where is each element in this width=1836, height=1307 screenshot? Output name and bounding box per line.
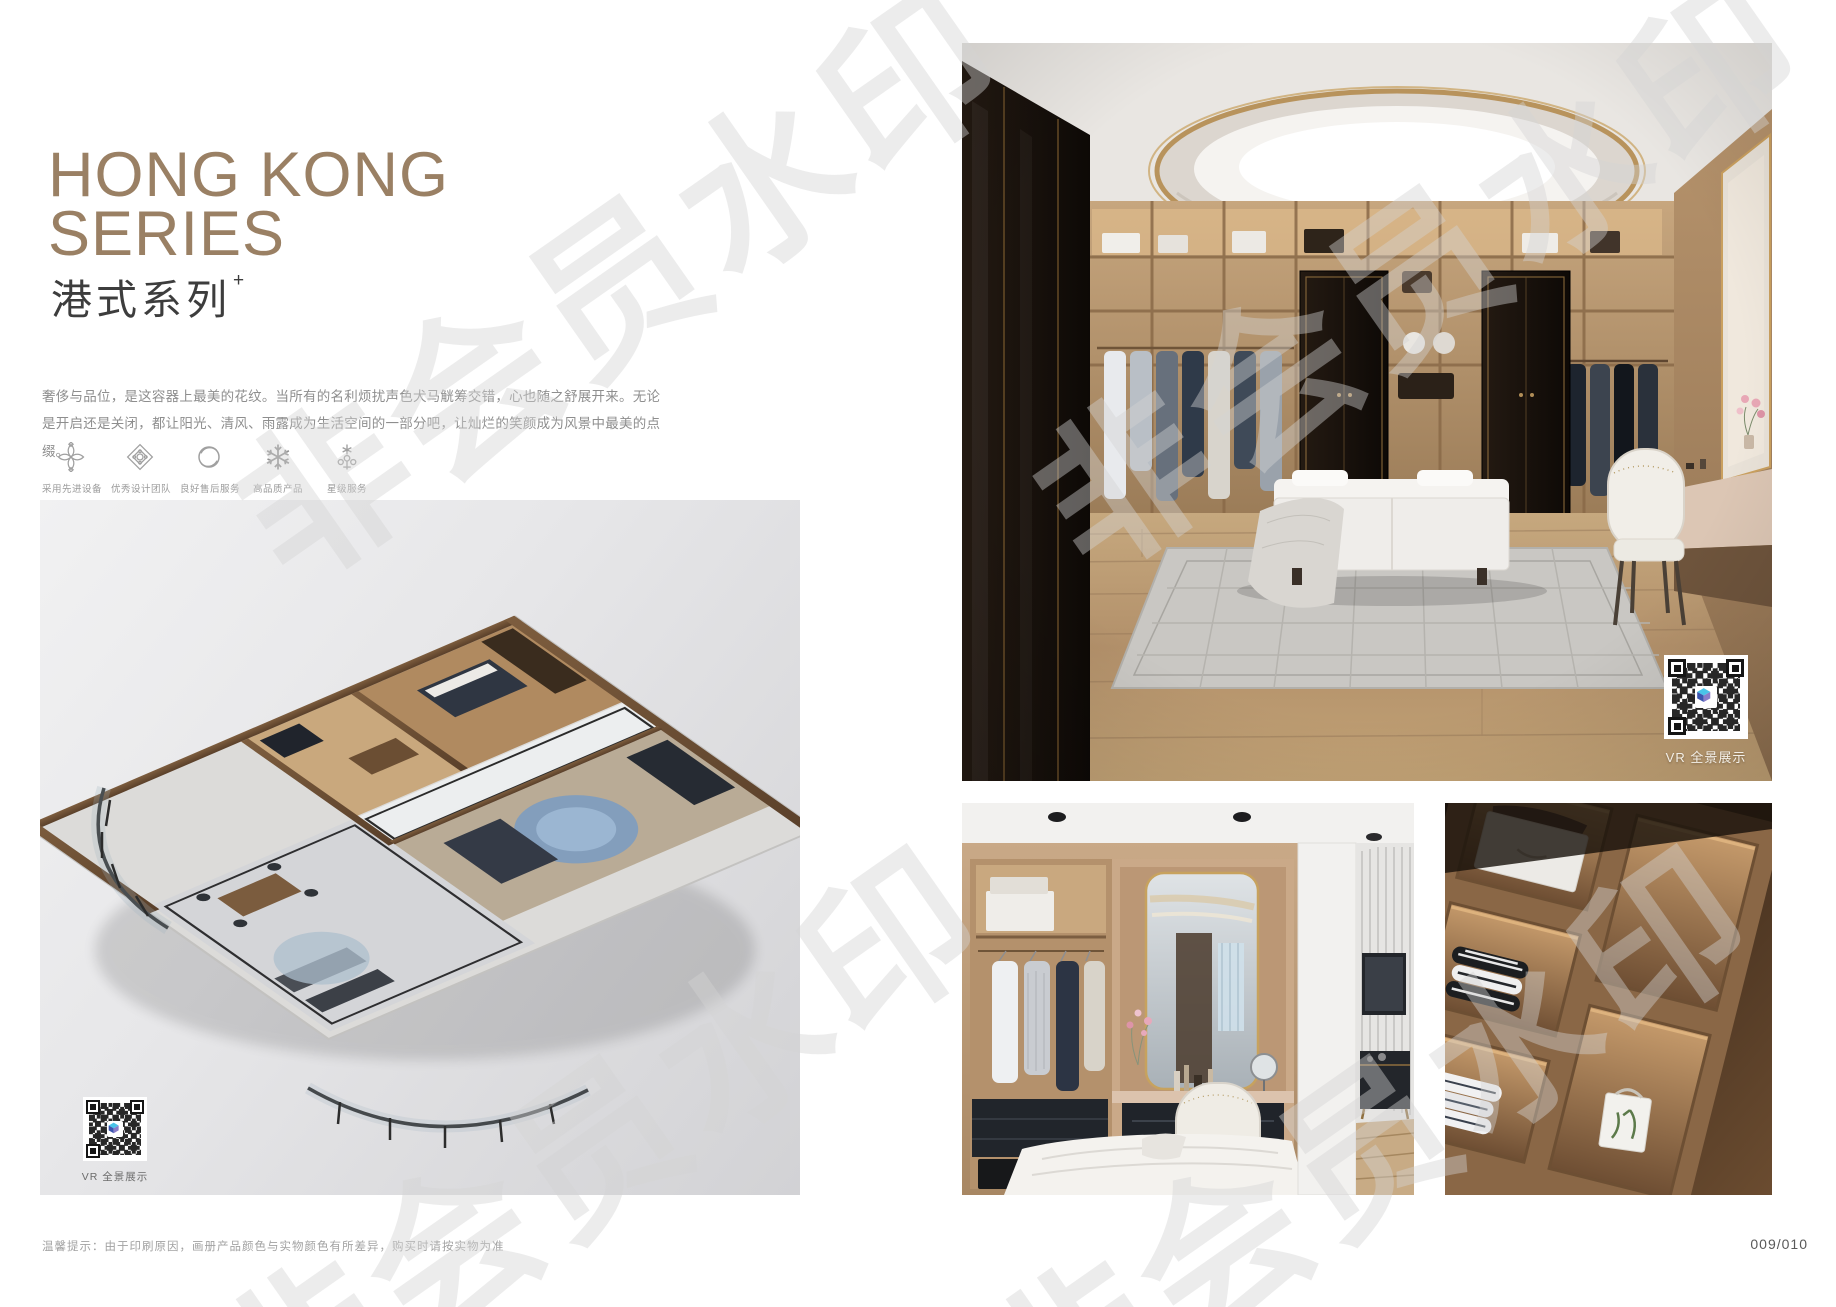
qr-cube-logo: [107, 1121, 124, 1138]
shelf-closeup-photo: [1445, 803, 1772, 1195]
white-column: [1298, 843, 1356, 1195]
qr-finder: [1668, 659, 1686, 677]
catalog-page: 非会员水印 非会员水印 非会员水印 非会员水印 HONG KONG SERIES…: [0, 0, 1836, 1307]
table-mirror: [1251, 1054, 1277, 1080]
qr-finder: [86, 1100, 99, 1113]
snowflake-icon: [263, 442, 293, 472]
feature-design-team: 优秀设计团队: [111, 442, 169, 495]
feature-label: 高品质产品: [249, 481, 307, 495]
qr-finder: [86, 1144, 99, 1157]
vr-panorama-label: VR 全景展示: [1634, 747, 1772, 766]
feature-advanced-equipment: 采用先进设备: [42, 442, 100, 495]
dressing-area-render: [962, 803, 1414, 1195]
series-title-cn: 港式系列+: [51, 266, 248, 326]
feature-list: 采用先进设备 优秀设计团队 良好售后服务: [42, 442, 376, 495]
vr-panorama-label: VR 全景展示: [58, 1169, 172, 1184]
adjacent-room-view: [1356, 843, 1414, 1195]
feature-label: 优秀设计团队: [111, 481, 169, 495]
shelf-closeup-render: [1445, 803, 1772, 1195]
qr-finder: [1668, 717, 1686, 735]
series-title-en: HONG KONG SERIES: [48, 146, 449, 264]
qr-cube-logo: [1695, 686, 1717, 708]
page-number: 009/010: [1750, 1236, 1808, 1252]
walk-in-closet-photo: VR 全景展示: [962, 43, 1772, 781]
qr-finder: [130, 1100, 143, 1113]
series-title-sup: +: [233, 270, 248, 291]
vignette: [962, 43, 1772, 781]
walk-in-closet-render: [962, 43, 1772, 781]
isometric-floorplan-render: [40, 500, 800, 1195]
feature-label: 星级服务: [318, 481, 376, 495]
print-disclaimer: 温馨提示：由于印刷原因，画册产品颜色与实物颜色有所差异，购买时请按实物为准: [42, 1238, 505, 1254]
feature-label: 采用先进设备: [42, 481, 100, 495]
floorplan-panel: VR 全景展示: [40, 500, 800, 1195]
feature-label: 良好售后服务: [180, 481, 238, 495]
feature-quality-product: 高品质产品: [249, 442, 307, 495]
ornament-icon: [332, 442, 362, 472]
feature-after-sales: 良好售后服务: [180, 442, 238, 495]
vr-qr-code[interactable]: [83, 1097, 147, 1161]
series-title-cn-text: 港式系列: [51, 277, 231, 323]
pinwheel-icon: [56, 442, 86, 472]
series-title-line2: SERIES: [48, 205, 449, 264]
ring-icon: [194, 442, 224, 472]
vr-qr-code[interactable]: [1664, 655, 1748, 739]
feature-star-service: 星级服务: [318, 442, 376, 495]
rosette-icon: [125, 442, 155, 472]
dressing-area-photo: [962, 803, 1414, 1195]
qr-finder: [1726, 659, 1744, 677]
series-title-line1: HONG KONG: [48, 146, 449, 205]
